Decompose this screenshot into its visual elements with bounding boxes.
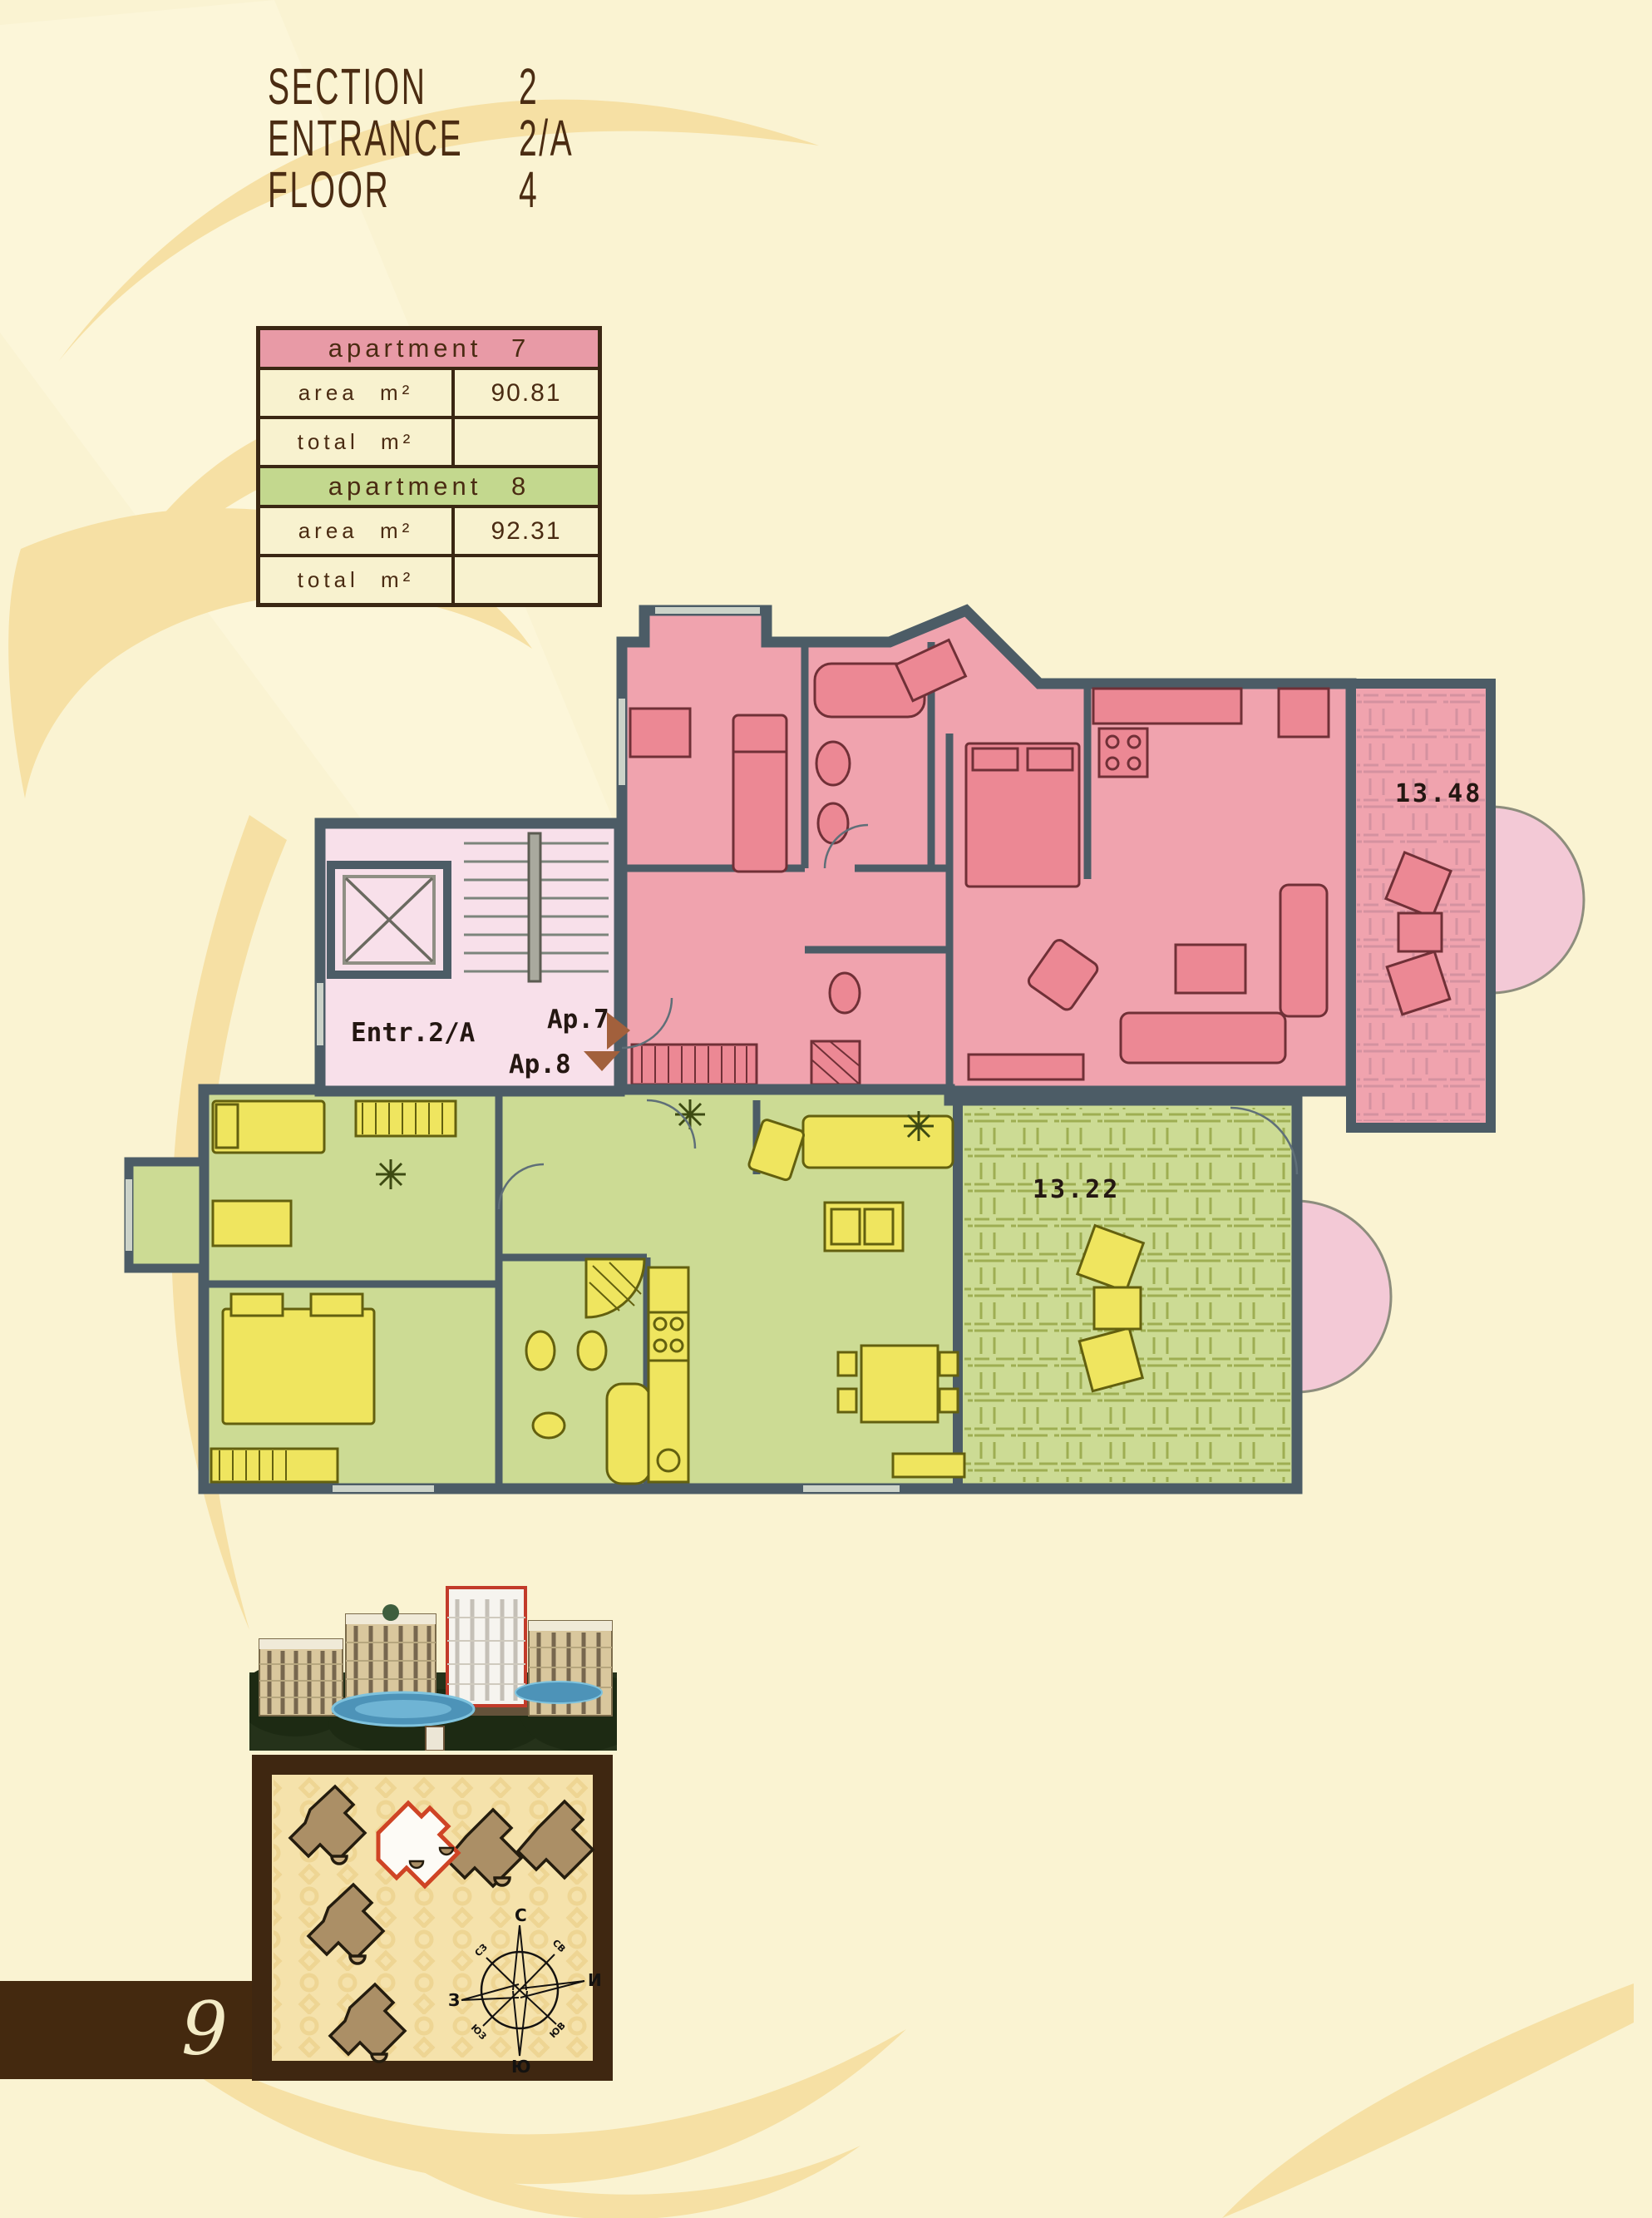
ap7-balcony-area-label: 13.48 [1395,779,1482,808]
section-label: SECTION [268,62,427,111]
ap8-balcony-area-label: 13.22 [1033,1175,1120,1204]
entrance-core: Entr.2/A Ap.7 Ap.8 [320,823,630,1091]
entrance-label: Entr.2/A [351,1018,476,1048]
gate [426,1726,444,1751]
area-label: area m² [260,370,451,416]
floor-plan: 13.48 [108,592,1596,1500]
apartment-8-area: 92.31 [455,508,598,554]
total-label: total m² [260,419,451,465]
compass-east: И [588,1970,602,1990]
apartment-7-unit: 13.48 [622,610,1584,1128]
page-number: 9 [165,1986,244,2072]
section-value: 2 [519,62,539,111]
apartment-7-total [455,419,598,465]
apartments-table: apartment 7 area m² 90.81 total m² apart… [256,326,602,607]
ap8-bay-window [1295,1201,1391,1392]
header-row-entrance: ENTRANCE 2/A [268,113,574,165]
ap8-left-bay [129,1162,204,1268]
entrance-value: 2/A [519,113,574,163]
pool-left-ripple [355,1700,451,1718]
ap7-pointer-label: Ap.7 [547,1005,609,1035]
page-header: SECTION 2 ENTRANCE 2/A FLOOR 4 [268,62,574,216]
elevator [331,865,447,975]
building-left [259,1639,343,1716]
page-number-bar: 9 [0,1981,259,2079]
area-label-2: area m² [260,508,451,554]
ap8-pointer-label: Ap.8 [509,1050,571,1079]
compass-west: З [448,1990,460,2010]
ap7-bay-window [1491,807,1584,993]
header-row-floor: FLOOR 4 [268,165,574,216]
floor-value: 4 [519,165,539,215]
complex-photo [249,1574,617,1751]
entrance-label: ENTRANCE [268,113,463,163]
site-plan: С Ю З И СЗ СВ ЮЗ ЮВ [252,1755,613,2081]
compass-south: Ю [511,2057,530,2077]
building-highlighted [447,1588,525,1706]
pool-right [515,1682,602,1703]
compass-north: С [515,1905,527,1925]
apartment-8-unit: 13.22 [129,1089,1391,1489]
apartment-8-total [455,557,598,603]
total-label-2: total m² [260,557,451,603]
brochure-page: SECTION 2 ENTRANCE 2/A FLOOR 4 apartment… [0,0,1652,2218]
floor-label: FLOOR [268,165,390,215]
apartment-7-area: 90.81 [455,370,598,416]
apartment-8-header: apartment 8 [260,468,598,505]
apartment-7-header: apartment 7 [260,330,598,367]
header-row-section: SECTION 2 [268,62,574,113]
